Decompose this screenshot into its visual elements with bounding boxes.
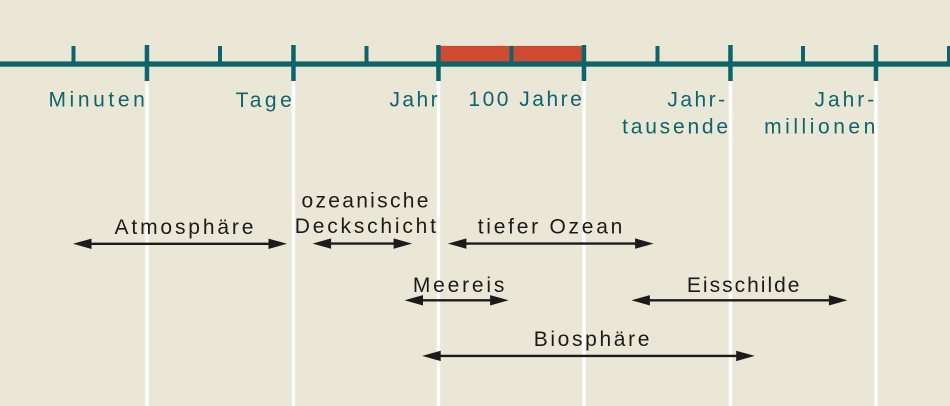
svg-text:Tage: Tage xyxy=(236,89,296,112)
svg-text:tiefer Ozean: tiefer Ozean xyxy=(478,216,625,239)
svg-text:ozeanische: ozeanische xyxy=(301,190,430,213)
svg-text:Jahr-: Jahr- xyxy=(667,89,727,112)
svg-text:Atmosphäre: Atmosphäre xyxy=(115,216,257,239)
svg-text:Eisschilde: Eisschilde xyxy=(687,274,802,297)
svg-text:Jahr-: Jahr- xyxy=(814,89,877,112)
svg-text:tausende: tausende xyxy=(622,116,731,139)
svg-text:100 Jahre: 100 Jahre xyxy=(468,88,584,111)
svg-text:Deckschicht: Deckschicht xyxy=(295,215,439,238)
svg-text:millionen: millionen xyxy=(764,116,879,139)
svg-text:Minuten: Minuten xyxy=(48,89,148,112)
svg-text:Meereis: Meereis xyxy=(413,274,507,297)
svg-text:Biosphäre: Biosphäre xyxy=(534,328,652,351)
svg-text:Jahr: Jahr xyxy=(389,89,440,112)
